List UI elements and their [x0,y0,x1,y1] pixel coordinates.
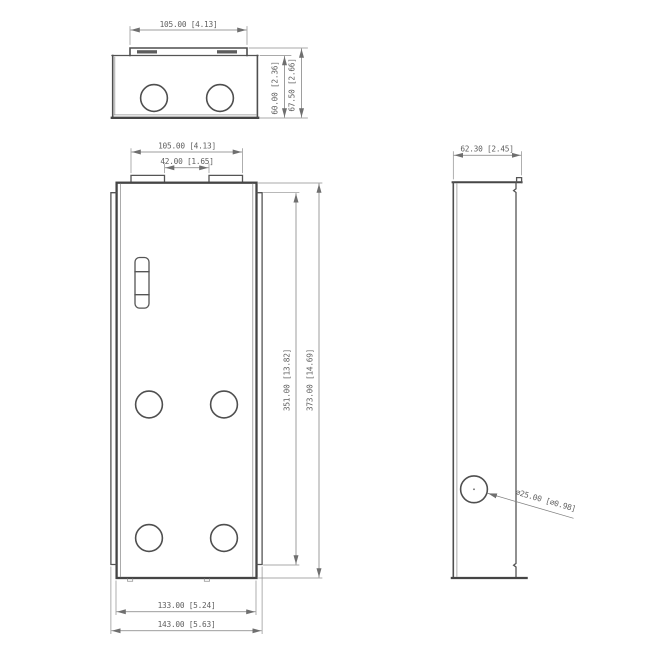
top-width-extension-lines [130,27,247,45]
top-view-slot-left [137,50,157,53]
top-view-slot-right [217,50,237,53]
side-view-right-edge [514,183,516,577]
drawing-svg: 105.00 [4.13] 60.00 [2.36] 67.50 [2.66] … [0,0,650,650]
front-view-hole-mid-left [136,391,163,418]
top-width-dim-text: 105.00 [4.13] [160,20,218,29]
front-view-inner-edge-lines [120,184,252,577]
front-view-tab-left [131,175,165,182]
side-hole-dim-text: ∅25.00 [∅0.98] [515,488,577,514]
front-view: 105.00 [4.13] 42.00 [1.65] 351.00 [13.82… [111,142,322,634]
front-view-flange-right [257,193,262,565]
front-view-hole-bottom-right [211,525,238,552]
top-outer-height-dim-text: 67.50 [2.66] [288,58,297,111]
front-view-body [117,183,257,578]
top-inner-height-dim-text: 60.00 [2.36] [271,61,280,114]
front-view-bottom-notches [128,579,210,581]
front-outerwidth-dim-text: 143.00 [5.63] [158,620,216,629]
side-depth-extension-lines [453,152,521,179]
side-depth-dim-text: 62.30 [2.45] [460,145,513,154]
front-outer-height-dim-text: 373.00 [14.69] [306,349,315,411]
front-innerwidth-dim-text: 133.00 [5.24] [158,601,216,610]
front-view-tab-right [209,175,243,182]
front-inner-height-dim-text: 351.00 [13.82] [283,349,292,411]
top-view-hole-right [207,85,234,112]
front-tabgap-dim-text: 42.00 [1.65] [160,157,213,166]
top-view-hole-left [141,85,168,112]
front-view-key-slot [135,258,149,309]
side-view-hole-center-mark [473,488,475,490]
technical-drawing-page: 105.00 [4.13] 60.00 [2.36] 67.50 [2.66] … [0,0,650,650]
side-view: ∅25.00 [∅0.98] 62.30 [2.45] [452,145,577,579]
front-view-hole-mid-right [211,391,238,418]
top-view: 105.00 [4.13] 60.00 [2.36] 67.50 [2.66] [112,20,308,118]
front-view-flange-left [111,193,116,565]
front-tabspan-dim-text: 105.00 [4.13] [158,142,216,151]
front-view-key-slot-dividers [135,272,149,295]
front-view-hole-bottom-left [136,525,163,552]
